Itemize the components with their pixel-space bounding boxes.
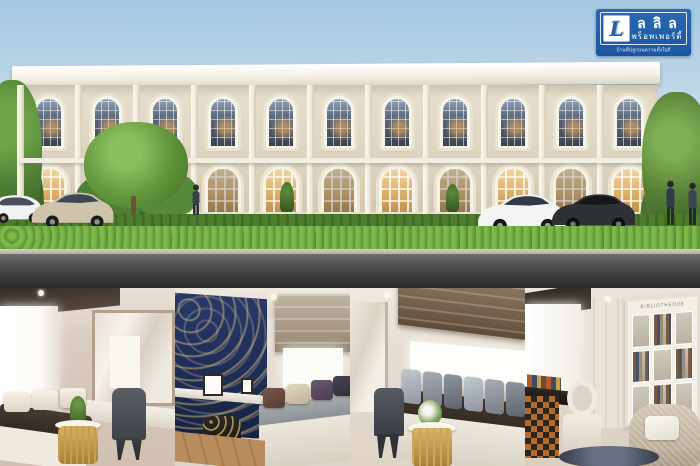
person-walking-center	[190, 184, 202, 216]
bookcase-cell	[675, 311, 693, 345]
desk-chair-legs	[377, 434, 399, 458]
brand-tagline: บ้านที่ปลูกบนความตั้งใจดี	[608, 46, 679, 54]
window-glass	[211, 99, 235, 146]
brand-name-block: ลลิล พร็อพเพอร์ตี้	[630, 17, 684, 41]
window-glass	[617, 99, 641, 146]
photo-library-study: BIBLIOTHEQUE	[525, 288, 700, 466]
louis-chair-back	[567, 380, 597, 416]
ceiling-downlight	[384, 292, 390, 298]
brand-name-bottom: พร็อพเพอร์ตี้	[630, 33, 684, 41]
window-glass	[269, 99, 293, 146]
topiary-plant	[446, 184, 459, 212]
desk-chair-legs	[116, 438, 142, 460]
bookcase-glass-doors	[632, 311, 693, 419]
pillow	[4, 392, 30, 412]
marketing-image: L ลลิล พร็อพเพอร์ตี้ บ้านที่ปลูกบนความตั…	[0, 0, 700, 466]
gold-table-base	[412, 428, 452, 466]
upper-arched-window	[614, 96, 644, 148]
upper-arched-window	[382, 96, 412, 148]
person-right-1	[664, 180, 677, 226]
pillow	[263, 388, 285, 408]
roman-shade	[275, 294, 350, 352]
pillow	[444, 374, 463, 410]
upper-arched-window	[208, 96, 238, 148]
pilaster	[249, 85, 256, 228]
fur-rug	[559, 446, 659, 466]
photo-navy-study-nook	[175, 288, 350, 466]
bookcase-cell	[653, 312, 671, 346]
ceiling-downlight	[605, 296, 611, 302]
desk-chair	[112, 388, 146, 440]
brand-logo-frame: L ลลิล พร็อพเพอร์ตี้	[600, 12, 687, 45]
facade-bay	[194, 85, 252, 228]
bookcase-cell	[632, 350, 650, 384]
brand-name-top: ลลิล	[630, 17, 684, 31]
road	[0, 254, 700, 288]
pillow	[311, 380, 333, 400]
bookcase-cell	[653, 348, 671, 382]
upper-arched-window	[498, 96, 528, 148]
facade-bay	[310, 85, 368, 228]
brand-monogram-letter: L	[609, 19, 623, 39]
bookcase-cell	[632, 314, 650, 348]
pillow	[464, 376, 483, 412]
topiary-plant	[280, 182, 294, 212]
gold-side-table	[58, 426, 98, 464]
brand-monogram-icon: L	[603, 15, 630, 42]
ceiling-downlight	[38, 290, 44, 296]
brand-logo: L ลลิล พร็อพเพอร์ตี้ บ้านที่ปลูกบนความตั…	[596, 9, 691, 56]
photo-window-seat-lounge	[350, 288, 525, 466]
exterior-render: L ลลิล พร็อพเพอร์ตี้ บ้านที่ปลูกบนความตั…	[0, 0, 700, 288]
window-glass	[327, 99, 351, 146]
photo-vanity-dressing-room	[0, 288, 175, 466]
roman-blind	[398, 288, 525, 340]
desk-chair	[374, 388, 404, 436]
facade-bay	[368, 85, 426, 228]
person-right-2	[686, 182, 699, 226]
pillow	[506, 381, 525, 417]
pillow	[32, 390, 58, 410]
upper-arched-window	[440, 96, 470, 148]
mirror-reflection	[110, 336, 140, 388]
bookcase-label: BIBLIOTHEQUE	[636, 301, 690, 310]
pilaster	[365, 85, 372, 228]
car-champagne-sedan	[30, 188, 116, 230]
bookcase-cell	[675, 347, 693, 381]
upper-arched-window	[556, 96, 586, 148]
pillow	[402, 368, 421, 404]
plant	[70, 396, 86, 422]
ceiling-downlight	[271, 294, 277, 300]
pillow	[287, 384, 309, 404]
picture-frame	[203, 374, 223, 396]
patterned-accent-piece	[525, 396, 559, 458]
pillow	[333, 376, 350, 396]
upper-arched-window	[266, 96, 296, 148]
window-glass	[443, 99, 467, 146]
picture-frame	[241, 378, 253, 394]
armchair-pillow	[645, 416, 679, 440]
window-glass	[385, 99, 409, 146]
pilaster	[423, 85, 430, 228]
pillow	[485, 379, 504, 415]
window-glass	[559, 99, 583, 146]
pilaster	[307, 85, 314, 228]
upper-arched-window	[324, 96, 354, 148]
interior-photo-strip: BIBLIOTHEQUE	[0, 288, 700, 466]
window-glass	[501, 99, 525, 146]
